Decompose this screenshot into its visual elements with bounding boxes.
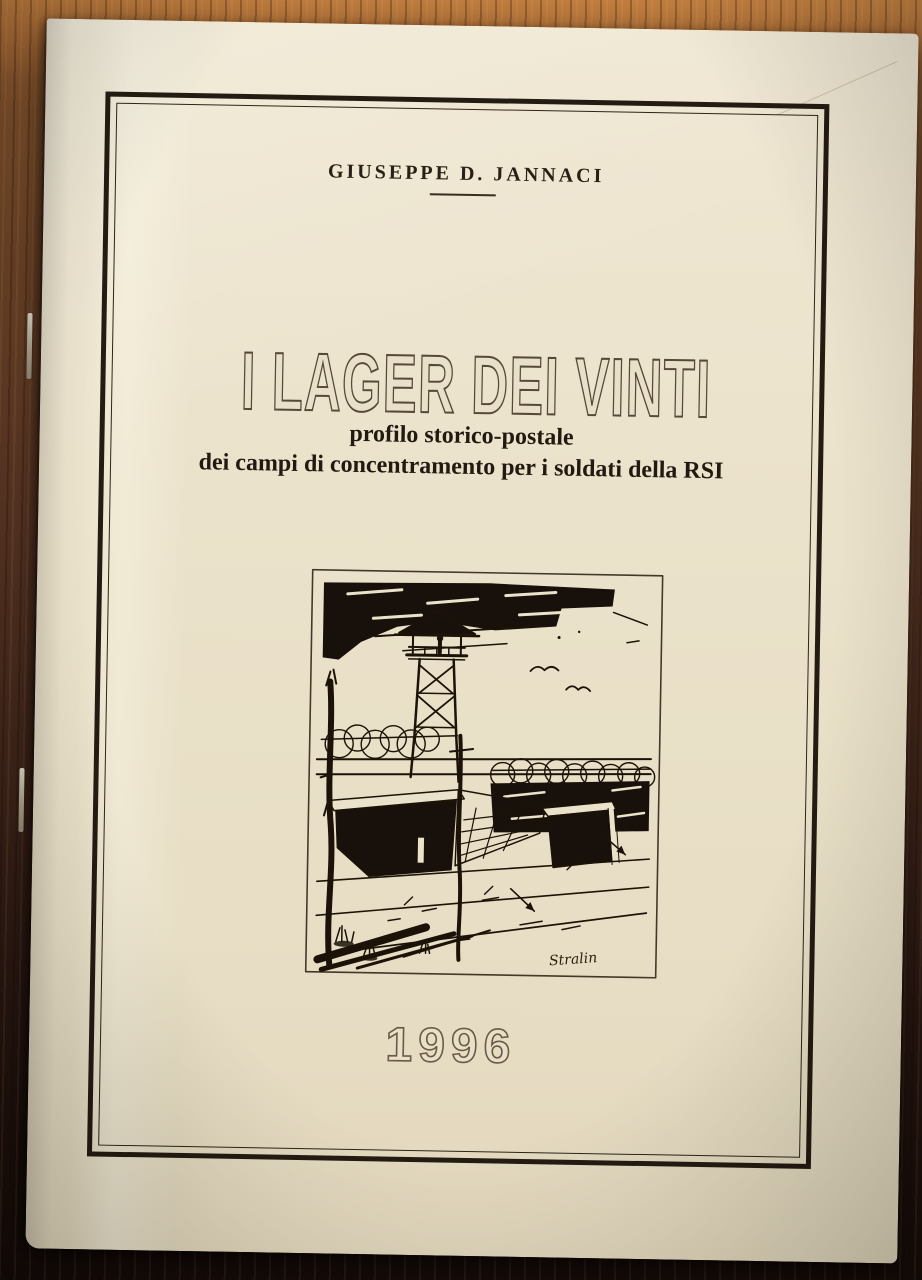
subtitle: profilo storico-postale dei campi di con… xyxy=(104,415,819,489)
cover-frame: GIUSEPPE D. JANNACI I LAGER DEI VINTI pr… xyxy=(87,92,829,1169)
author-underline xyxy=(430,193,496,196)
booklet-cover: GIUSEPPE D. JANNACI I LAGER DEI VINTI pr… xyxy=(25,18,918,1263)
illustration-signature: Stralin xyxy=(549,950,598,969)
camp-illustration: Stralin xyxy=(303,567,665,980)
barrack-right xyxy=(541,800,620,868)
year-label: 1996 xyxy=(93,1012,808,1079)
birds-icon xyxy=(530,667,590,692)
barbed-wire-coils xyxy=(320,724,655,789)
photo: GIUSEPPE D. JANNACI I LAGER DEI VINTI pr… xyxy=(0,0,922,1280)
fence-rails xyxy=(317,753,651,780)
ground-shadow xyxy=(317,894,580,974)
author-name: GIUSEPPE D. JANNACI xyxy=(109,157,823,192)
sky-band xyxy=(323,580,648,665)
